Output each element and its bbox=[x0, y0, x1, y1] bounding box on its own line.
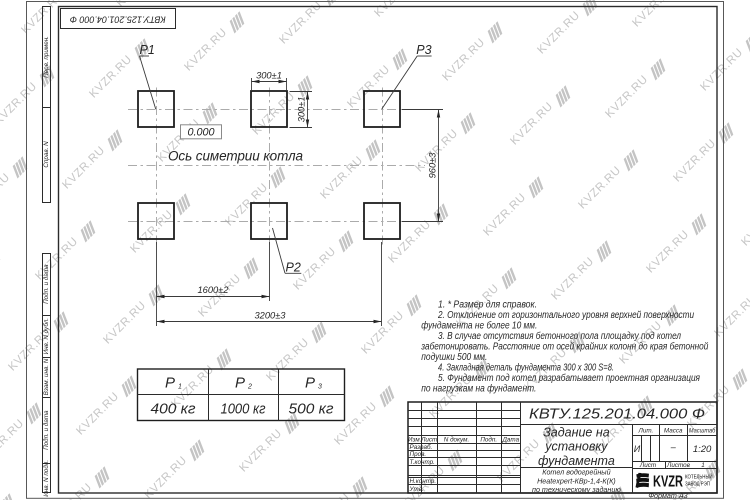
svg-text:2. Отклонение от горизонтально: 2. Отклонение от горизонтального уровня … bbox=[437, 310, 694, 321]
svg-text:KVZR.RU: KVZR.RU bbox=[386, 218, 433, 265]
svg-text:KVZR.RU: KVZR.RU bbox=[725, 0, 750, 2]
svg-text:Разраб.: Разраб. bbox=[410, 443, 433, 451]
svg-text:Ось симетрии котла: Ось симетрии котла bbox=[168, 149, 303, 164]
svg-text:Р: Р bbox=[235, 374, 245, 391]
svg-text:KVZR.RU: KVZR.RU bbox=[60, 144, 107, 191]
svg-text:забетонировать. Расстояние от: забетонировать. Расстояние от осей крайн… bbox=[420, 342, 708, 353]
svg-text:Подп. и дата: Подп. и дата bbox=[42, 410, 50, 450]
svg-text:Р3: Р3 bbox=[416, 43, 431, 57]
svg-text:Листов: Листов bbox=[666, 462, 691, 469]
svg-text:Подп. и дата: Подп. и дата bbox=[42, 264, 50, 304]
svg-text:KVZR.RU: KVZR.RU bbox=[74, 390, 121, 437]
svg-text:Р2: Р2 bbox=[286, 260, 301, 274]
svg-text:KVZR.RU: KVZR.RU bbox=[47, 481, 94, 500]
svg-text:Взам. инв. N: Взам. инв. N bbox=[43, 358, 50, 395]
svg-text:0.000: 0.000 bbox=[187, 127, 214, 139]
svg-text:KVZR.RU: KVZR.RU bbox=[182, 26, 229, 73]
svg-text:KVZR.RU: KVZR.RU bbox=[0, 417, 27, 464]
svg-text:KVZR.RU: KVZR.RU bbox=[318, 154, 365, 201]
svg-text:Т.контр.: Т.контр. bbox=[410, 459, 435, 466]
svg-text:1. * Размер для справок.: 1. * Размер для справок. bbox=[438, 300, 537, 311]
svg-text:300±1: 300±1 bbox=[256, 71, 282, 81]
svg-text:–: – bbox=[670, 442, 677, 452]
svg-text:3: 3 bbox=[318, 384, 322, 391]
svg-text:KVZR.RU: KVZR.RU bbox=[101, 299, 148, 346]
svg-text:Р1: Р1 bbox=[140, 43, 155, 57]
svg-text:2: 2 bbox=[247, 384, 252, 391]
svg-text:И: И bbox=[634, 444, 641, 454]
svg-text:KVZR.RU: KVZR.RU bbox=[128, 208, 175, 255]
svg-text:подушки 500 мм.: подушки 500 мм. bbox=[421, 352, 487, 363]
svg-text:300±1: 300±1 bbox=[297, 97, 307, 123]
svg-text:1:20: 1:20 bbox=[693, 444, 712, 455]
svg-text:КВТУ.125.201.04.000 Ф: КВТУ.125.201.04.000 Ф bbox=[70, 14, 166, 24]
svg-text:1: 1 bbox=[178, 384, 182, 391]
svg-text:KVZR.RU: KVZR.RU bbox=[87, 53, 134, 100]
svg-text:KVZR.RU: KVZR.RU bbox=[481, 191, 528, 238]
svg-text:Инв. N дубл.: Инв. N дубл. bbox=[42, 318, 50, 354]
svg-text:KVZR.RU: KVZR.RU bbox=[671, 137, 718, 184]
svg-text:фундамента: фундамента bbox=[538, 454, 615, 468]
svg-text:5. Фундамент под котел разраба: 5. Фундамент под котел разрабатывает про… bbox=[438, 373, 700, 384]
svg-text:1600±2: 1600±2 bbox=[198, 285, 230, 295]
svg-text:Дата: Дата bbox=[501, 436, 519, 443]
svg-text:3200±3: 3200±3 bbox=[255, 310, 287, 320]
svg-text:KVZR.RU: KVZR.RU bbox=[603, 73, 650, 120]
svg-text:Перв. примен.: Перв. примен. bbox=[43, 36, 50, 78]
svg-text:Масштаб: Масштаб bbox=[689, 427, 716, 435]
svg-text:KVZR.RU: KVZR.RU bbox=[576, 164, 623, 211]
svg-text:KVZR.RU: KVZR.RU bbox=[508, 100, 555, 147]
svg-text:Формат А3: Формат А3 bbox=[648, 491, 687, 500]
svg-text:KVZR.RU: KVZR.RU bbox=[712, 292, 750, 339]
svg-text:KVZR.RU: KVZR.RU bbox=[196, 272, 243, 319]
svg-text:Лист: Лист bbox=[420, 436, 437, 443]
svg-text:КВТУ.125.201.04.000 Ф: КВТУ.125.201.04.000 Ф bbox=[529, 406, 705, 422]
svg-text:KVZR.RU: KVZR.RU bbox=[644, 228, 691, 275]
svg-text:Лит.: Лит. bbox=[638, 428, 654, 435]
svg-text:KVZR.RU: KVZR.RU bbox=[250, 90, 297, 137]
svg-text:960±3: 960±3 bbox=[428, 152, 438, 179]
svg-text:KVZR.RU: KVZR.RU bbox=[332, 400, 379, 447]
svg-text:KVZR.RU: KVZR.RU bbox=[0, 171, 13, 218]
svg-text:KVZR.RU: KVZR.RU bbox=[372, 0, 419, 19]
svg-text:KVZR: KVZR bbox=[653, 474, 683, 491]
svg-text:по техническому заданию: по техническому заданию bbox=[532, 485, 621, 494]
svg-text:N докум.: N докум. bbox=[444, 435, 469, 443]
svg-text:KVZR.RU: KVZR.RU bbox=[237, 427, 284, 474]
svg-text:Изм.: Изм. bbox=[408, 436, 421, 443]
svg-text:KVZR.RU: KVZR.RU bbox=[630, 0, 677, 29]
svg-text:Утв.: Утв. bbox=[409, 486, 424, 493]
svg-text:KVZR.RU: KVZR.RU bbox=[0, 80, 40, 127]
svg-text:4. Закладная деталь фундамента: 4. Закладная деталь фундамента 300 x 300… bbox=[438, 363, 614, 374]
svg-text:KVZR.RU: KVZR.RU bbox=[440, 36, 487, 83]
svg-text:Пров.: Пров. bbox=[410, 451, 427, 458]
svg-text:Масса: Масса bbox=[664, 428, 683, 435]
svg-text:Н.контр.: Н.контр. bbox=[410, 478, 437, 485]
svg-text:1000 кг: 1000 кг bbox=[221, 402, 266, 418]
svg-text:установку: установку bbox=[544, 440, 608, 454]
svg-text:фундамента не более 10 мм.: фундамента не более 10 мм. bbox=[421, 321, 537, 332]
svg-text:3. В случае отсутствия бетонно: 3. В случае отсутствия бетонного пола пл… bbox=[438, 331, 681, 342]
svg-text:Подп.: Подп. bbox=[480, 435, 497, 443]
svg-text:400 кг: 400 кг bbox=[151, 402, 196, 418]
svg-text:Лист: Лист bbox=[639, 462, 656, 469]
svg-text:KVZR.RU: KVZR.RU bbox=[698, 46, 745, 93]
svg-text:KVZR.RU: KVZR.RU bbox=[549, 255, 596, 302]
svg-text:KVZR.RU: KVZR.RU bbox=[739, 201, 750, 248]
svg-text:500 кг: 500 кг bbox=[289, 402, 334, 418]
svg-text:Инв. N подл.: Инв. N подл. bbox=[42, 460, 50, 497]
svg-text:KVZR.RU: KVZR.RU bbox=[33, 235, 80, 282]
svg-text:Р: Р bbox=[305, 374, 315, 391]
svg-text:Справ. N: Справ. N bbox=[43, 141, 50, 168]
svg-text:Котел водогрейный: Котел водогрейный bbox=[542, 467, 610, 476]
svg-text:1: 1 bbox=[701, 462, 705, 469]
svg-text:KVZR.RU: KVZR.RU bbox=[535, 9, 582, 56]
svg-text:по нагрузкам на фундамент.: по нагрузкам на фундамент. bbox=[421, 384, 536, 395]
svg-text:Задание на: Задание на bbox=[543, 425, 610, 439]
svg-text:КОТЕЛЬНЫЙ: КОТЕЛЬНЫЙ bbox=[685, 472, 713, 480]
svg-text:ЗАВОД РЭП: ЗАВОД РЭП bbox=[685, 482, 710, 488]
svg-text:KVZR.RU: KVZR.RU bbox=[359, 309, 406, 356]
svg-text:Р: Р bbox=[165, 374, 175, 391]
